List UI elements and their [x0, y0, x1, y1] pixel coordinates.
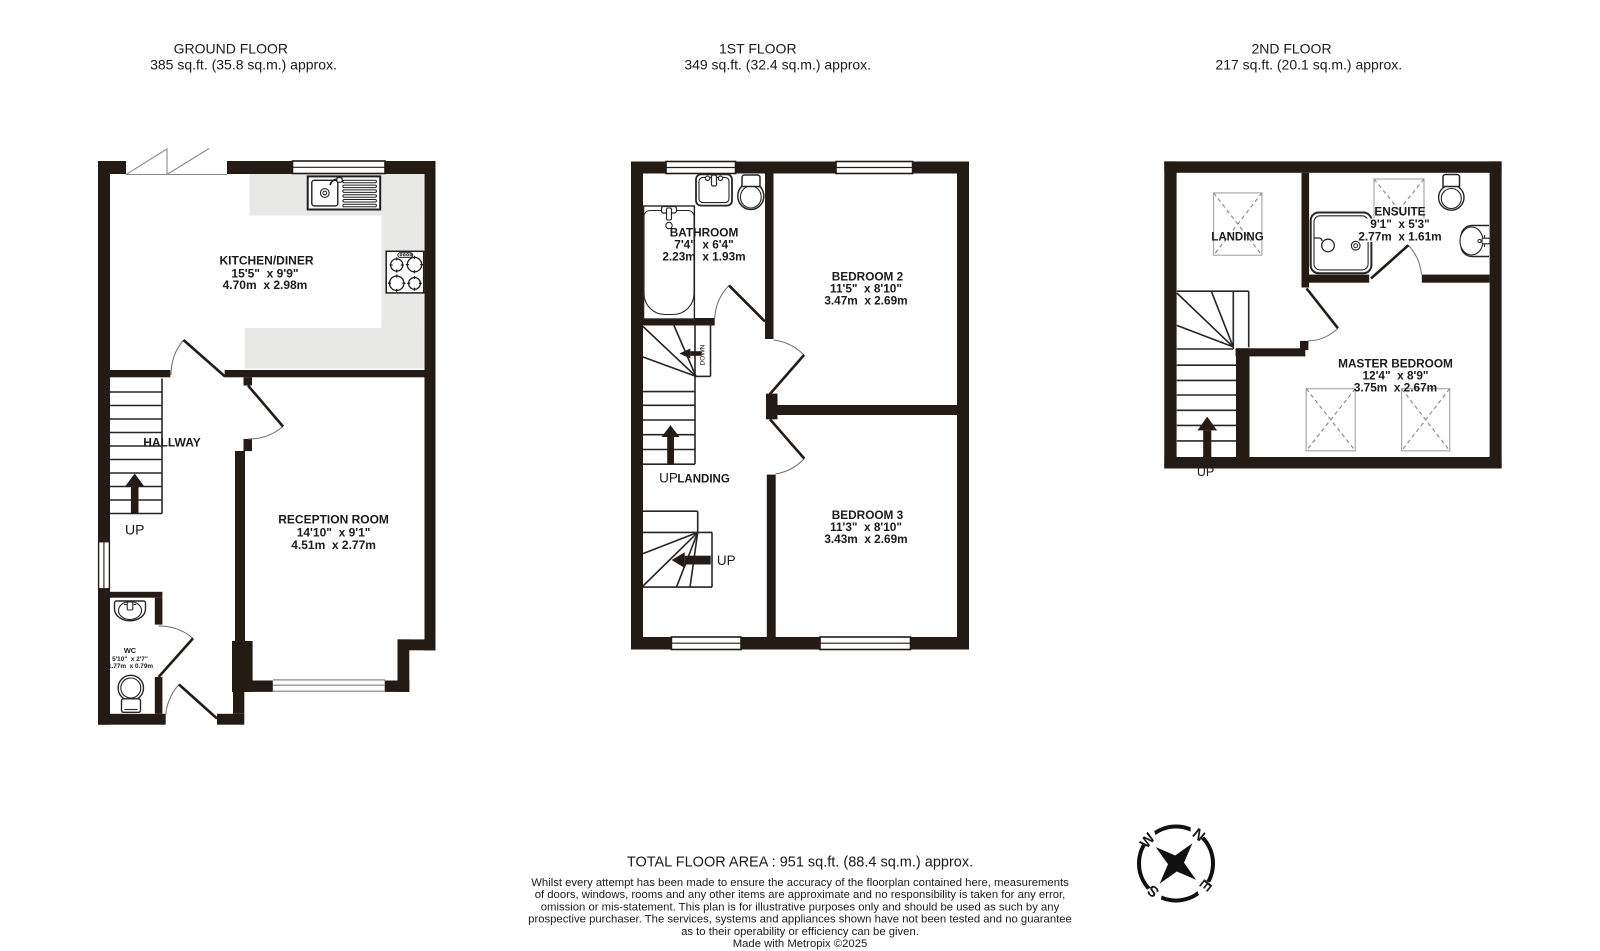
svg-text:HALLWAY: HALLWAY: [143, 435, 201, 449]
svg-text:GROUND FLOOR: GROUND FLOOR: [174, 40, 288, 56]
svg-text:prospective purchaser. The ser: prospective purchaser. The services, sys…: [528, 914, 1072, 926]
svg-text:4.70m x 2.98m: 4.70m x 2.98m: [223, 278, 308, 292]
svg-text:1ST FLOOR: 1ST FLOOR: [719, 40, 797, 56]
svg-text:2ND FLOOR: 2ND FLOOR: [1251, 40, 1331, 56]
svg-text:UP: UP: [125, 522, 144, 538]
svg-text:UP: UP: [659, 471, 678, 486]
svg-text:UP: UP: [717, 553, 736, 568]
svg-text:2.77m x 1.61m: 2.77m x 1.61m: [1358, 230, 1441, 244]
svg-text:omission or mis-statement. Thi: omission or mis-statement. This plan is …: [541, 901, 1060, 913]
svg-text:Made with Metropix ©2025: Made with Metropix ©2025: [733, 938, 868, 950]
svg-text:217 sq.ft. (20.1 sq.m.) approx: 217 sq.ft. (20.1 sq.m.) approx.: [1215, 56, 1402, 72]
svg-text:349 sq.ft. (32.4 sq.m.) approx: 349 sq.ft. (32.4 sq.m.) approx.: [684, 56, 871, 72]
svg-text:LANDING: LANDING: [1211, 232, 1263, 244]
svg-text:1.77m x 0.79m: 1.77m x 0.79m: [108, 663, 153, 670]
svg-text:as to their operability or eff: as to their operability or efficiency ca…: [681, 926, 919, 938]
svg-text:2.23m x 1.93m: 2.23m x 1.93m: [662, 250, 745, 264]
svg-text:LANDING: LANDING: [677, 474, 729, 486]
svg-text:KITCHEN/DINER: KITCHEN/DINER: [219, 254, 313, 268]
svg-text:385 sq.ft. (35.8 sq.m.) approx: 385 sq.ft. (35.8 sq.m.) approx.: [150, 56, 337, 72]
svg-text:3.47m x 2.69m: 3.47m x 2.69m: [824, 294, 907, 308]
svg-text:3.75m x 2.67m: 3.75m x 2.67m: [1354, 381, 1437, 395]
svg-text:3.43m x 2.69m: 3.43m x 2.69m: [824, 532, 907, 546]
svg-text:Whilst every attempt has been: Whilst every attempt has been made to en…: [531, 877, 1069, 889]
svg-text:RECEPTION ROOM: RECEPTION ROOM: [278, 513, 389, 527]
svg-text:UP: UP: [1197, 465, 1214, 479]
svg-text:TOTAL FLOOR AREA : 951 sq.ft.: TOTAL FLOOR AREA : 951 sq.ft. (88.4 sq.m…: [627, 855, 973, 871]
svg-text:of doors, windows, rooms and a: of doors, windows, rooms and any other i…: [535, 889, 1066, 901]
svg-text:DOWN: DOWN: [700, 344, 707, 365]
svg-text:WC: WC: [124, 646, 137, 655]
svg-text:4.51m x 2.77m: 4.51m x 2.77m: [291, 538, 376, 552]
